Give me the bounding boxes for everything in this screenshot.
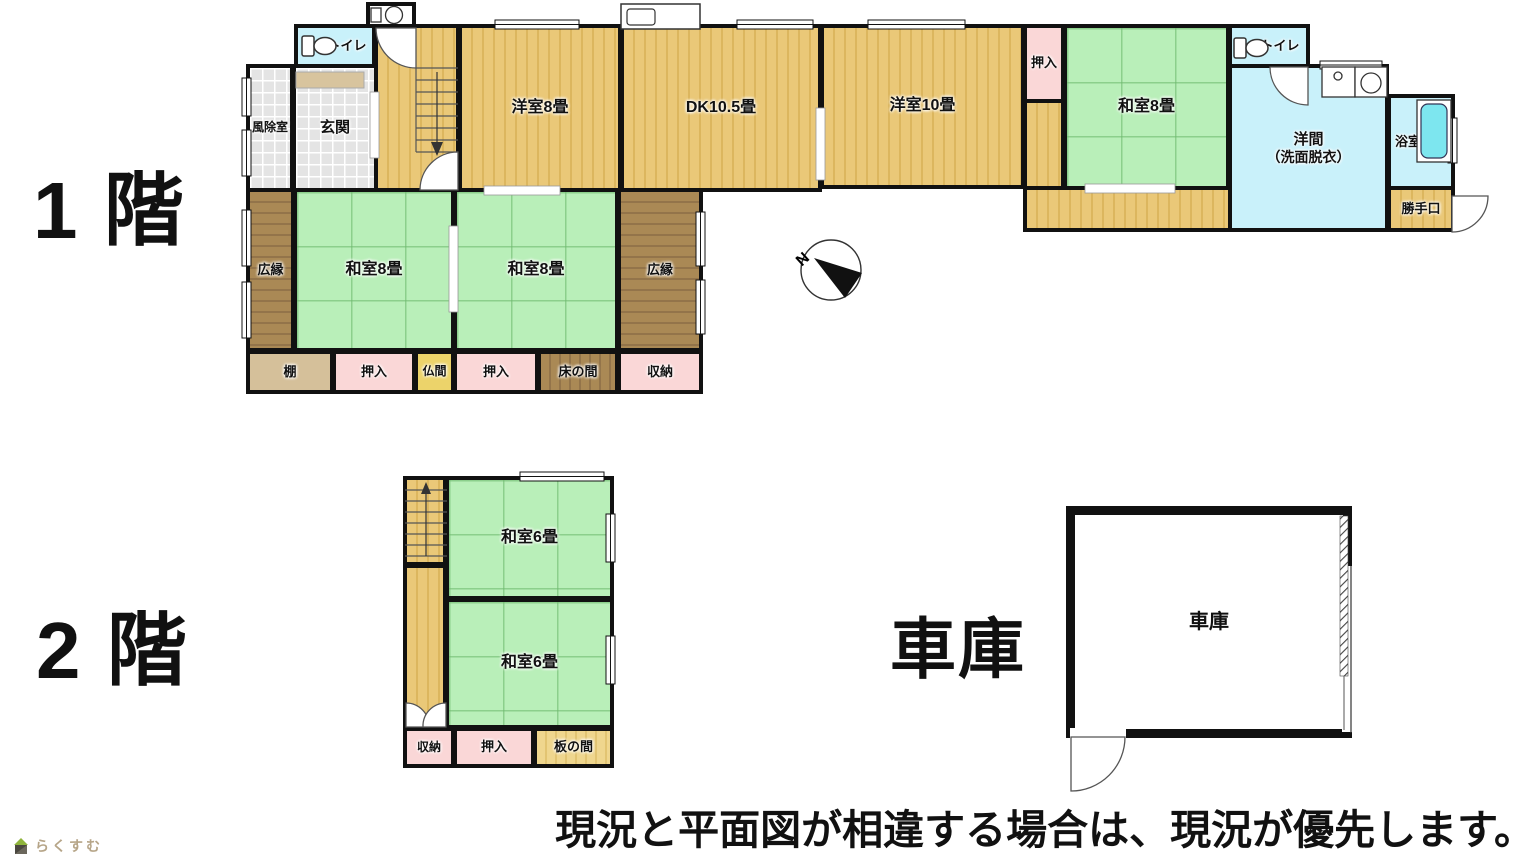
room-label: 押入 [481,740,507,755]
disclaimer-text: 現況と平面図が相違する場合は、現況が優先します。 [555,796,1535,856]
room-label: 洋室10畳 [890,97,956,115]
room-oshiire-b: 押入 [453,350,539,394]
room-label: 押入 [483,365,509,380]
room-corridor-2f [403,564,447,731]
room-hiroen-right: 広縁 [617,188,703,352]
room-toilet-right: トイレ [1228,24,1310,68]
room-yoma: 洋間 （洗面脱衣） [1228,64,1389,232]
room-oshiire-a: 押入 [332,350,416,394]
room-label: 棚 [283,365,296,380]
room-label: 収納 [647,365,673,380]
room-label: 板の間 [554,740,593,755]
room-label: 和室8畳 [508,261,565,279]
room-label: 浴室 [1395,135,1421,150]
room-label: 床の間 [558,365,597,380]
room-sublabel: （洗面脱衣） [1267,149,1351,165]
room-oshiire-top: 押入 [1023,24,1065,103]
room-label: 広縁 [647,263,673,278]
room-washitsu6-top: 和室6畳 [445,476,614,600]
room-label: 和室6畳 [501,529,558,547]
logo-text: らくすむ [35,836,103,856]
house-logo-icon [12,837,30,855]
room-label: トイレ [1260,39,1299,54]
room-label: 勝手口 [1401,202,1440,217]
room-tokonoma: 床の間 [537,350,619,394]
room-label: 車庫 [1189,611,1229,634]
compass-icon: N [793,240,862,300]
room-label: 洋室8畳 [512,99,569,117]
room-washitsu8-a: 和室8畳 [293,188,455,352]
room-label: 収納 [417,741,441,755]
room-label: 仏間 [422,365,446,379]
room-yoshitsu10: 洋室10畳 [820,24,1025,189]
room-label: 和室8畳 [1118,98,1175,116]
room-label: 押入 [361,365,387,380]
room-label: 風除室 [252,121,288,135]
room-label: DK10.5畳 [686,99,756,117]
room-stairs-2f [403,476,447,566]
room-label: 洋間 [1293,131,1323,148]
room-washitsu8-b: 和室8畳 [453,188,619,352]
room-shuno-1f: 収納 [617,350,703,394]
room-corridor-ne [1023,99,1065,192]
room-label: 和室6畳 [501,654,558,672]
room-butsuma: 仏間 [414,350,455,394]
room-oshiire-2f: 押入 [453,727,535,768]
room-garage: 車庫 [1066,506,1352,738]
room-yokushitsu: 浴室 [1387,94,1455,190]
room-corridor-east [1023,186,1232,232]
floor2-title: 2 階 [36,586,189,702]
room-label: 押入 [1031,56,1057,71]
floorplan-canvas: 1 階 2 階 車庫 トイレ 風除室 玄関 洋室8畳 DK10.5畳 洋室10畳… [0,0,1539,864]
room-genkan: 玄関 [292,64,378,192]
room-shuno-2f: 収納 [403,727,455,768]
room-tana: 棚 [246,350,334,394]
room-fujoshitsu: 風除室 [246,64,294,192]
floor1-title: 1 階 [33,146,186,262]
room-yoshitsu8: 洋室8畳 [458,24,622,192]
room-label: トイレ [327,39,366,54]
room-itanoma: 板の間 [533,727,614,768]
room-washitsu8-ne: 和室8畳 [1063,24,1230,190]
room-dk: DK10.5畳 [620,24,822,192]
room-washitsu6-bottom: 和室6畳 [445,598,614,729]
room-toilet-left: トイレ [294,24,376,68]
room-label: 玄関 [320,119,350,136]
room-hiroen-left: 広縁 [246,188,295,352]
room-katteguchi: 勝手口 [1387,186,1455,232]
room-stair-hall [374,24,460,192]
room-label: 広縁 [257,263,283,278]
site-logo: らくすむ [12,836,103,856]
room-label: 和室8畳 [346,261,403,279]
compass-north-label: N [793,249,813,269]
garage-title: 車庫 [890,596,1026,692]
